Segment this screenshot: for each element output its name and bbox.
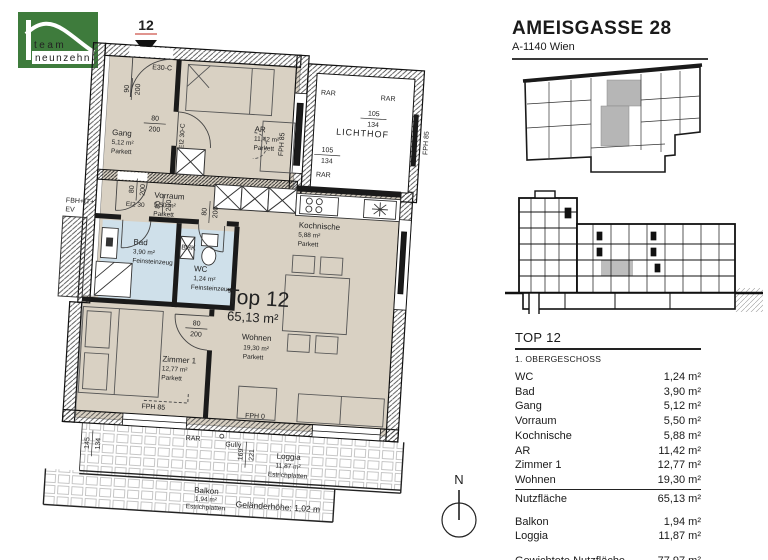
svg-text:80: 80 — [151, 115, 159, 122]
table-row: Loggia11,87 m² — [515, 529, 701, 544]
svg-text:134: 134 — [95, 438, 103, 450]
row-value: 1,24 m² — [664, 370, 701, 385]
ev-label: EV — [65, 206, 75, 214]
title-block: AMEISGASSE 28 A-1140 Wien — [512, 18, 708, 60]
svg-text:134: 134 — [321, 158, 333, 166]
area-table-rule — [515, 348, 701, 350]
row-value: 1,94 m² — [664, 515, 701, 530]
unit-area: 65,13 m² — [227, 308, 280, 326]
rar-label-4: RAR — [185, 435, 200, 443]
wc-area: 1,24 m² — [193, 275, 216, 283]
svg-text:80: 80 — [155, 201, 162, 209]
subtotal-rule — [515, 489, 701, 490]
section-basement — [523, 293, 735, 309]
unit-marker-number: 12 — [138, 17, 154, 33]
svg-text:80: 80 — [128, 185, 135, 193]
row-value: 5,50 m² — [664, 414, 701, 429]
floor-plan-drawing: 12 — [0, 0, 500, 560]
project-address: A-1140 Wien — [512, 41, 708, 53]
row-label: Kochnische — [515, 429, 572, 444]
row-label: Wohnen — [515, 473, 556, 488]
total-value: 77,97 m² — [658, 554, 701, 560]
row-label: Loggia — [515, 529, 548, 544]
row-label: WC — [515, 370, 533, 385]
balkon-area: 1,94 m² — [195, 496, 218, 504]
row-label: Bad — [515, 385, 535, 400]
site-plan-drawing — [515, 60, 705, 186]
svg-text:200: 200 — [139, 184, 147, 196]
section-unit-highlight — [601, 260, 633, 276]
section-ground-hatch — [735, 288, 763, 312]
fbh-label: FBH+IT+ — [66, 197, 95, 206]
svg-text:90: 90 — [124, 85, 131, 93]
kochnische-area: 5,88 m² — [298, 231, 321, 239]
ar-floor: Parkett — [253, 145, 274, 153]
ar-name: AR — [254, 125, 266, 135]
north-label: N — [454, 472, 463, 487]
svg-text:145: 145 — [84, 437, 92, 449]
total-row: Gewichtete Nutzfläche77,97 m² — [515, 554, 701, 560]
row-label: Vorraum — [515, 414, 557, 429]
table-row: Vorraum5,50 m² — [515, 414, 701, 429]
table-row: Zimmer 112,77 m² — [515, 458, 701, 473]
row-label: AR — [515, 444, 530, 459]
zimmer1-floor: Parkett — [161, 374, 182, 382]
svg-text:80: 80 — [193, 320, 201, 327]
rar-label-2: RAR — [381, 95, 396, 103]
rar-label-1: RAR — [321, 90, 336, 98]
row-value: 19,30 m² — [658, 473, 701, 488]
table-row: Gang5,12 m² — [515, 399, 701, 414]
area-table: TOP 12 1. OBERGESCHOSS WC1,24 m² Bad3,90… — [515, 330, 701, 560]
table-row: Kochnische5,88 m² — [515, 429, 701, 444]
svg-text:200: 200 — [148, 126, 160, 134]
row-value: 5,12 m² — [664, 399, 701, 414]
svg-text:169: 169 — [237, 448, 245, 460]
kochnische-floor: Parkett — [297, 240, 318, 248]
project-title: AMEISGASSE 28 — [512, 18, 708, 40]
table-row: AR11,42 m² — [515, 444, 701, 459]
row-value: 11,87 m² — [658, 529, 701, 544]
fph85-ar-label: FPH 85 — [278, 132, 286, 156]
svg-text:200: 200 — [190, 331, 202, 339]
row-value: 12,77 m² — [658, 458, 701, 473]
storey-label: 1. OBERGESCHOSS — [515, 354, 701, 364]
entry-door-label: E30-C — [152, 64, 172, 72]
floorplan-sheet: team neunzehn 12 — [0, 0, 768, 560]
row-value: 5,88 m² — [664, 429, 701, 444]
row-value: 3,90 m² — [664, 385, 701, 400]
north-arrow-icon: N — [436, 468, 482, 554]
wc-name: WC — [194, 264, 208, 274]
fph85-right-label: FPH 85 — [422, 131, 430, 155]
subtotal-row: Nutzfläche65,13 m² — [515, 492, 701, 507]
subtotal-label: Nutzfläche — [515, 492, 567, 507]
table-row: WC1,24 m² — [515, 370, 701, 385]
svg-text:221: 221 — [248, 449, 256, 461]
wohnen-name: Wohnen — [242, 332, 272, 343]
loggia-name: Loggia — [276, 452, 301, 462]
bad-area: 3,90 m² — [133, 248, 156, 256]
table-row: Wohnen19,30 m² — [515, 473, 701, 488]
gully-label: Gully — [225, 441, 242, 449]
row-label: Gang — [515, 399, 542, 414]
balkon-name: Balkon — [194, 486, 219, 496]
wohnen-floor: Parkett — [242, 353, 263, 361]
svg-text:80: 80 — [201, 208, 208, 216]
fph0-label: FPH 0 — [245, 413, 265, 421]
gang-floor: Parkett — [111, 148, 132, 156]
table-row: Balkon1,94 m² — [515, 515, 701, 530]
area-table-title: TOP 12 — [515, 330, 701, 345]
svg-text:105: 105 — [368, 111, 380, 119]
svg-text:200: 200 — [165, 199, 173, 211]
row-value: 11,42 m² — [658, 444, 701, 459]
svg-text:200: 200 — [134, 83, 142, 95]
row-label: Zimmer 1 — [515, 458, 561, 473]
svg-text:105: 105 — [321, 147, 333, 155]
subtotal-value: 65,13 m² — [658, 492, 701, 507]
svg-text:200: 200 — [212, 206, 220, 218]
svg-text:134: 134 — [367, 122, 379, 130]
section-drawing — [505, 188, 763, 314]
gang-name: Gang — [112, 128, 132, 138]
total-label: Gewichtete Nutzfläche — [515, 554, 625, 560]
rar-label-3: RAR — [316, 171, 331, 179]
gang-area: 5,12 m² — [111, 139, 134, 147]
table-row: Bad3,90 m² — [515, 385, 701, 400]
row-label: Balkon — [515, 515, 549, 530]
bad-name: Bad — [133, 237, 148, 247]
ei230-label: EI2 30 — [126, 201, 146, 209]
bhk-label: BHK — [181, 244, 196, 252]
fph85-zimmer-label: FPH 85 — [141, 403, 165, 411]
